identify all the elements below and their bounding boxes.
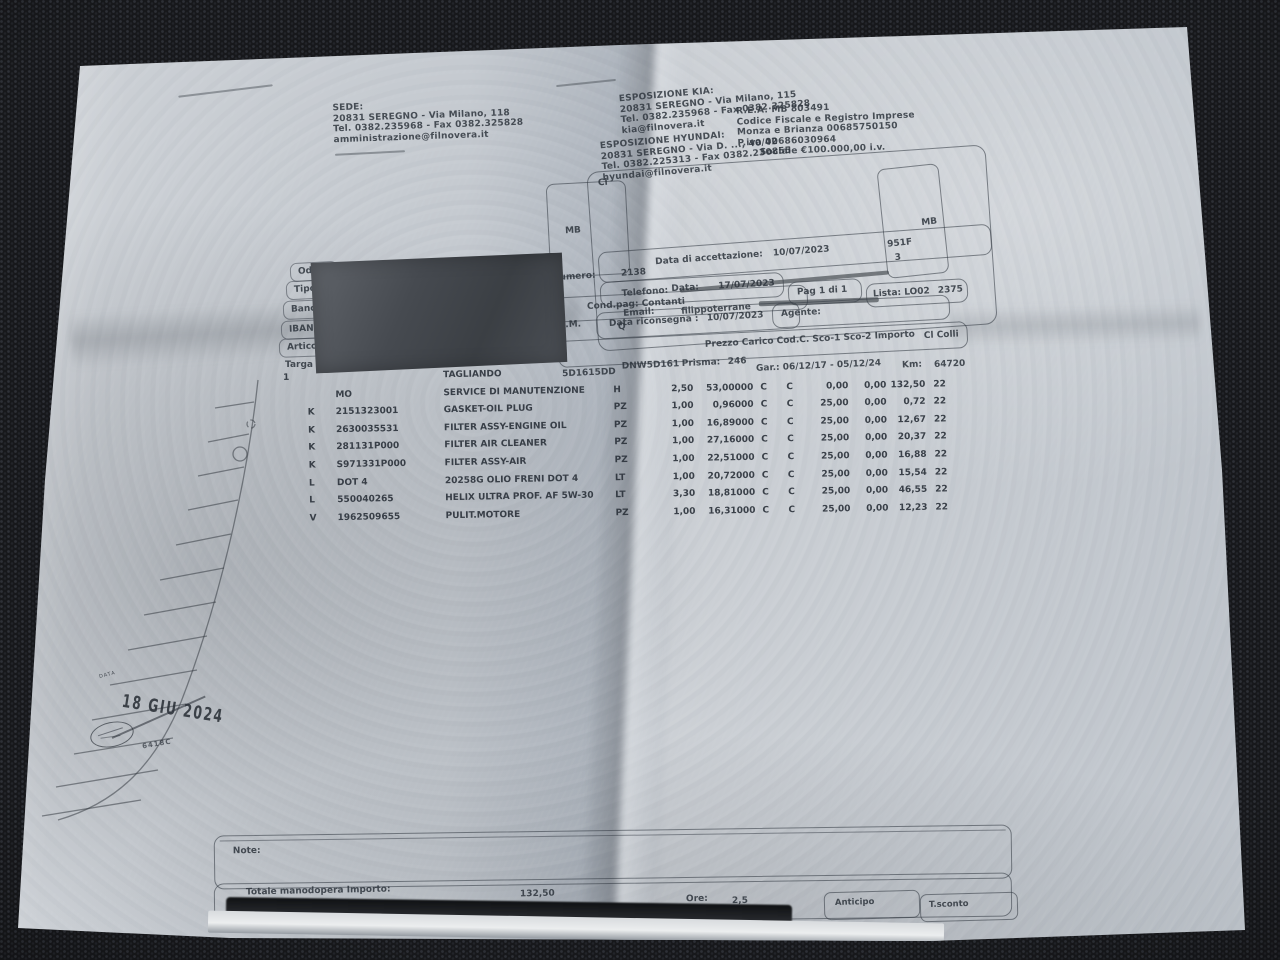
row-flag-2: C	[787, 452, 801, 462]
row-amount: 132,50	[879, 379, 925, 390]
row-vat: 22	[934, 432, 956, 442]
document-content: SEDE: 20831 SEREGNO - Via Milano, 118 Te…	[0, 0, 1280, 960]
row-number: 1	[283, 373, 297, 383]
photo-of-invoice: SEDE: 20831 SEREGNO - Via Milano, 118 Te…	[0, 0, 1280, 960]
row-discount-1: 25,00	[805, 451, 849, 462]
row-quantity: 2,50	[639, 383, 693, 394]
row-code: 550040265	[337, 493, 441, 505]
row-code: 2630035531	[336, 423, 440, 435]
row-code: DOT 4	[337, 476, 441, 488]
row-type: K	[308, 443, 328, 453]
row-discount-1: 25,00	[805, 398, 849, 409]
row-unit: LT	[615, 490, 641, 500]
row-amount	[879, 362, 925, 363]
row-quantity: 1,00	[641, 507, 695, 518]
anticipo-box: Anticipo	[824, 890, 921, 921]
tsconto-label: T.sconto	[929, 899, 969, 910]
note-label: Note:	[233, 846, 261, 856]
field-articolo-label: Artico	[287, 342, 318, 353]
field-iban-label: IBAN	[289, 324, 314, 335]
row-flag-1: C	[761, 452, 775, 462]
row-price: 0,96000	[696, 400, 754, 411]
row-flag-1: C	[762, 505, 776, 515]
tsconto-box: T.sconto	[920, 892, 1019, 923]
field-targa-label: Targa	[285, 360, 313, 370]
row-unit: PZ	[614, 420, 640, 430]
row-quantity: 3,30	[641, 489, 695, 500]
row-flag-1: C	[762, 470, 776, 480]
invoice-paper: SEDE: 20831 SEREGNO - Via Milano, 118 Te…	[0, 0, 1280, 960]
row-flag-1: C	[761, 417, 775, 427]
row-amount: 46,55	[881, 485, 927, 496]
row-flag-1: C	[761, 435, 775, 445]
row-type: L	[309, 495, 329, 505]
row-discount-1: 0,00	[804, 381, 848, 392]
row-quantity: 1,00	[640, 419, 694, 430]
acceptance-label: Data di accettazione:	[655, 249, 763, 267]
letterhead-sede: SEDE: 20831 SEREGNO - Via Milano, 118 Te…	[332, 97, 524, 146]
acceptance-value: 10/07/2023	[773, 244, 830, 258]
row-price: 53,00000	[695, 382, 753, 393]
numero-value: 2138	[621, 267, 647, 279]
card-left-mb: MB	[565, 225, 581, 236]
row-flag-2: C	[787, 434, 801, 444]
row-flag-1: C	[762, 488, 776, 498]
row-code: 281131P000	[336, 441, 440, 453]
row-unit: LT	[615, 472, 641, 482]
row-vat: 22	[935, 484, 957, 494]
row-type: K	[309, 460, 329, 470]
note-box-inner-line	[220, 830, 1006, 842]
row-price: 16,31000	[697, 506, 755, 517]
row-type: K	[308, 407, 328, 417]
row-code: 2151323001	[336, 405, 440, 417]
row-flag-2: C	[788, 505, 802, 515]
row-quantity: 1,00	[640, 401, 694, 412]
row-quantity: 1,00	[641, 471, 695, 482]
ruler-marks	[40, 372, 280, 832]
row-price: 20,72000	[697, 470, 755, 481]
row-discount-1: 25,00	[806, 504, 850, 515]
row-description: TAGLIANDO	[443, 366, 673, 380]
row-amount: 12,23	[881, 503, 927, 514]
row-type: L	[309, 478, 329, 488]
card-right-mb: MB	[921, 217, 938, 229]
row-unit: H	[613, 384, 639, 394]
colli-header: Cl Colli	[924, 329, 959, 341]
row-unit: PZ	[615, 455, 641, 465]
row-code: 1962509655	[337, 511, 441, 523]
row-code: MO	[335, 388, 439, 400]
row-code: S971331P000	[337, 458, 441, 470]
faint-mark	[178, 84, 272, 97]
row-discount-1: 25,00	[805, 416, 849, 427]
anticipo-label: Anticipo	[835, 897, 875, 908]
row-vat: 22	[934, 449, 956, 459]
row-unit: PZ	[614, 437, 640, 447]
row-discount-1	[804, 363, 848, 364]
row-flag-2: C	[788, 487, 802, 497]
row-amount: 16,88	[880, 450, 926, 461]
row-quantity: 1,00	[641, 454, 695, 465]
card-fragment: Cl	[598, 178, 608, 189]
riconsegna-value: 10/07/2023	[707, 310, 764, 323]
service-table: 1 TAGLIANDO MO SERVICE DI MANUTENZIONE H…	[283, 359, 986, 530]
row-price: 16,89000	[696, 418, 754, 429]
row-vat: 22	[935, 502, 957, 512]
row-discount-1: 25,00	[806, 469, 850, 480]
service-table-rows: 1 TAGLIANDO MO SERVICE DI MANUTENZIONE H…	[283, 359, 986, 530]
row-price: 18,81000	[697, 488, 755, 499]
row-type: V	[309, 513, 329, 523]
row-flag-1: C	[760, 382, 774, 392]
row-amount: 15,54	[881, 467, 927, 478]
row-price: 22,51000	[697, 453, 755, 464]
row-discount-2	[850, 362, 886, 363]
row-code	[335, 370, 439, 372]
faint-mark	[556, 79, 616, 87]
row-amount: 0,72	[880, 397, 926, 408]
row-price	[695, 365, 753, 366]
row-type: K	[308, 425, 328, 435]
row-flag-1: C	[761, 400, 775, 410]
redacted-customer-block	[310, 252, 567, 373]
row-price: 27,16000	[696, 435, 754, 446]
row-flag-2: C	[786, 382, 800, 392]
row-amount: 20,37	[880, 432, 926, 443]
row-vat: 22	[934, 414, 956, 424]
row-flag-2: C	[787, 417, 801, 427]
totale-manodopera-value: 132,50	[520, 889, 555, 900]
faint-mark	[335, 150, 405, 155]
row-vat: 22	[935, 467, 957, 477]
row-unit: PZ	[615, 508, 641, 518]
row-vat: 22	[933, 379, 955, 389]
row-flag-2: C	[788, 470, 802, 480]
row-unit: PZ	[614, 402, 640, 412]
row-vat: 22	[934, 396, 956, 406]
row-discount-1: 25,00	[805, 434, 849, 445]
row-quantity: 1,00	[640, 436, 694, 447]
row-amount: 12,67	[880, 415, 926, 426]
row-flag-2: C	[787, 399, 801, 409]
q-label: Q	[618, 322, 626, 332]
row-discount-1: 25,00	[806, 486, 850, 497]
